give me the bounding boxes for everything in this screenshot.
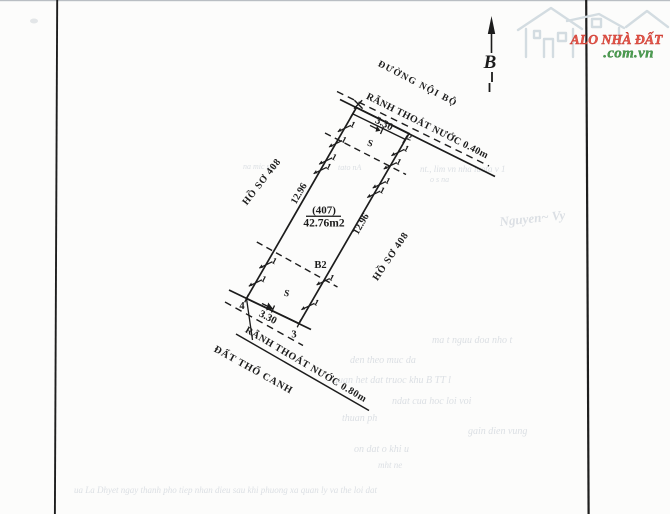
svg-text:1: 1: [327, 272, 336, 283]
svg-text:ua La Dhyet ngay thanh pho tie: ua La Dhyet ngay thanh pho tiep nhan die…: [74, 485, 377, 495]
svg-text:1: 1: [260, 273, 269, 284]
svg-text:1: 1: [349, 119, 358, 130]
svg-text:1: 1: [324, 161, 333, 172]
svg-text:1: 1: [378, 185, 387, 196]
svg-text:Nguyen~ Vy: Nguyen~ Vy: [498, 207, 566, 229]
svg-text:1: 1: [395, 156, 404, 167]
svg-text:B2: B2: [314, 260, 326, 271]
svg-text:ndat cua hoc loi voi: ndat cua hoc loi voi: [392, 396, 472, 407]
svg-text:12.96: 12.96: [351, 212, 372, 237]
svg-text:tato nA: tato nA: [338, 163, 361, 172]
svg-text:(407): (407): [312, 205, 336, 217]
svg-text:gain dien vung: gain dien vung: [468, 426, 527, 437]
svg-text:on dat o khi u: on dat o khi u: [354, 444, 409, 455]
svg-text:nt., lim vn nha luota v 1: nt., lim vn nha luota v 1: [420, 164, 506, 174]
svg-text:o s na: o s na: [430, 175, 449, 184]
svg-text:thuan ph: thuan ph: [342, 413, 377, 424]
svg-text:HỒ SƠ 408: HỒ SƠ 408: [369, 229, 411, 283]
svg-text:den theo muc da: den theo muc da: [350, 355, 416, 366]
svg-text:1: 1: [402, 143, 411, 154]
svg-text:1: 1: [270, 255, 279, 266]
svg-text:ma t nguu doa nho t: ma t nguu doa nho t: [432, 335, 513, 346]
svg-text:1: 1: [330, 151, 339, 162]
svg-text:S: S: [366, 139, 374, 150]
svg-text:mht ne: mht ne: [378, 460, 402, 470]
svg-text:42.76m2: 42.76m2: [303, 218, 344, 230]
svg-text:S: S: [283, 289, 291, 300]
svg-text:B: B: [483, 52, 497, 73]
svg-text:1: 1: [384, 175, 393, 186]
svg-text:.com.vn: .com.vn: [603, 46, 653, 62]
